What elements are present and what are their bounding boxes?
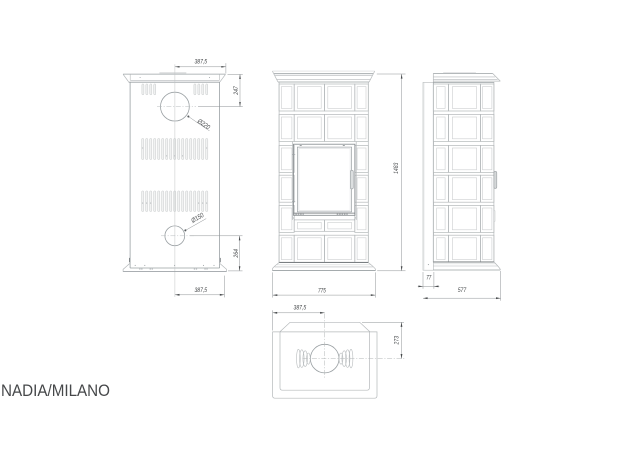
svg-text:775: 775 [318, 287, 326, 294]
svg-text:NADIA/MILANO: NADIA/MILANO [1, 381, 110, 400]
svg-text:264: 264 [233, 249, 240, 259]
svg-text:273: 273 [394, 336, 401, 346]
svg-text:1483: 1483 [393, 162, 400, 173]
svg-text:247: 247 [233, 86, 240, 96]
svg-text:387,5: 387,5 [194, 59, 207, 66]
svg-text:387,5: 387,5 [194, 287, 207, 294]
svg-text:77: 77 [426, 275, 431, 282]
svg-text:577: 577 [458, 287, 467, 294]
svg-text:387,5: 387,5 [294, 305, 307, 312]
